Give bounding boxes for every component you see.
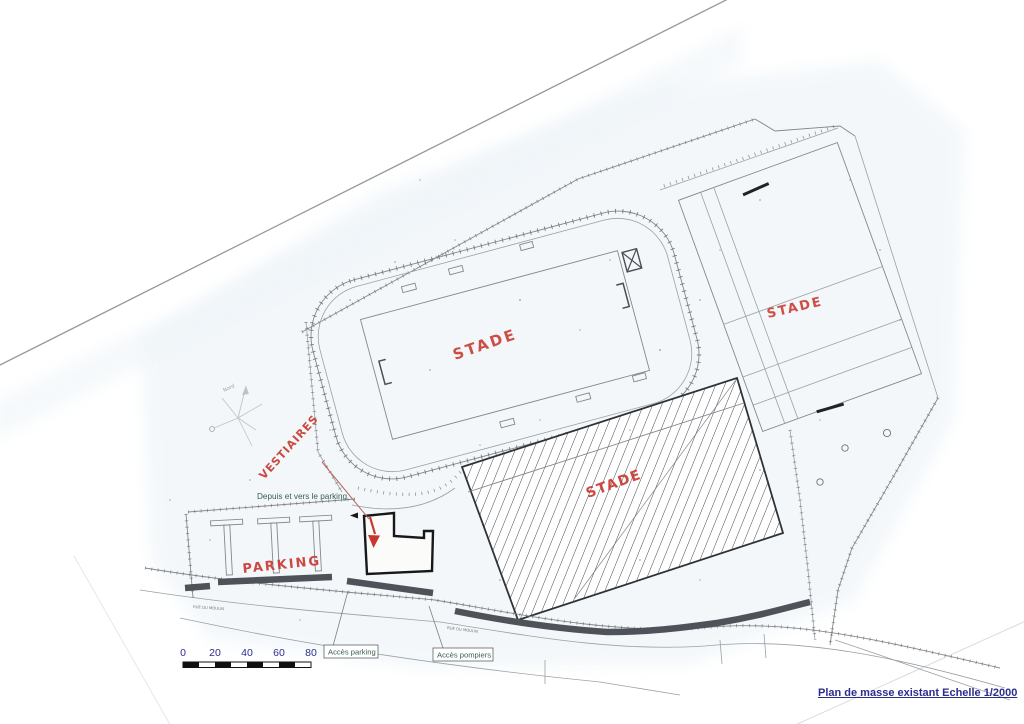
scale-tick: 60: [273, 647, 285, 659]
scanned-site-plan-page: STADE STADE STADE: [0, 0, 1024, 724]
label-access-firefighters: Accès pompiers: [437, 651, 491, 660]
label-route-note: Depuis et vers le parking: [257, 492, 348, 501]
scale-tick: 80: [305, 647, 317, 659]
plan-caption: Plan de masse existant Echelle 1/2000: [818, 687, 1024, 699]
site-plan-svg: STADE STADE STADE: [0, 0, 1024, 724]
scale-tick: 0: [180, 647, 186, 659]
scale-tick: 20: [209, 647, 221, 659]
label-access-parking: Accès parking: [328, 648, 376, 657]
scale-tick: 40: [241, 647, 253, 659]
